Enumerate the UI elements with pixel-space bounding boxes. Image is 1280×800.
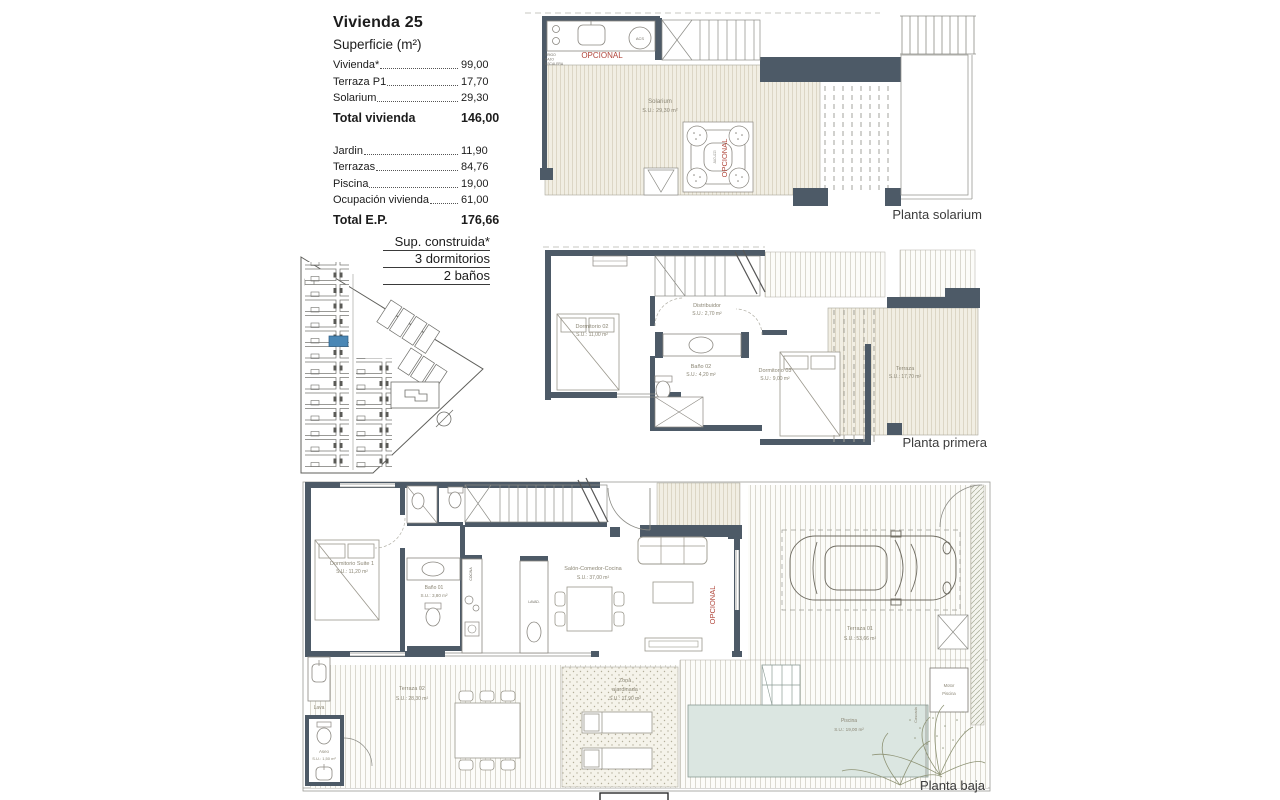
solarium-room-label: Solarium (648, 99, 672, 105)
terraza02-area: S.U.: 28,30 m² (396, 696, 429, 702)
table-row: Piscina19,00 (333, 178, 501, 190)
caption-planta-solarium: Planta solarium (892, 207, 982, 222)
table-row: Ocupación vivienda61,00 (333, 194, 501, 206)
opcional-kitchen-label: OPCIONAL (581, 51, 623, 60)
table-total-row: Total vivienda146,00 (333, 111, 501, 125)
site-amenity (391, 382, 439, 408)
table-total-row: Total E.P.176,66 (333, 213, 501, 227)
bano02-label: Baño 02 (691, 364, 712, 370)
site-units-left (305, 262, 349, 467)
jacuzzi-label: JACUZZI (713, 150, 717, 163)
dorm03-area: S.U.: 9,00 m² (760, 376, 790, 382)
pergola-slats (825, 68, 888, 193)
svg-text:BAJO: BAJO (545, 58, 554, 62)
table-row: Jardin11,90 (333, 145, 501, 157)
surface-table: Vivienda 25 Superficie (m²) Vivienda*99,… (333, 14, 501, 232)
lava-label: Lava (314, 705, 325, 711)
spec-line: Sup. construida* (383, 235, 490, 251)
hedge (971, 485, 984, 725)
entry-door-arc (608, 488, 650, 530)
window (617, 394, 663, 397)
outdoor-table (455, 691, 520, 770)
caption-planta-primera: Planta primera (902, 435, 987, 450)
cocina-label: COCINA (469, 567, 473, 581)
site-plan (293, 252, 485, 476)
zona-label-2: ajardinada (612, 687, 639, 693)
table-row: Vivienda*99,00 (333, 59, 501, 71)
caption-planta-baja: Planta baja (920, 778, 986, 793)
distribuidor-area: S.U.: 2,70 m² (692, 311, 722, 317)
section-cut-mark (735, 250, 765, 294)
cascada-label: Cascada (913, 706, 918, 723)
aseo-area: S.U.: 1,50 m² (312, 756, 336, 761)
svg-text:ESCALERA: ESCALERA (545, 62, 564, 66)
jacuzzi: JACUZZI OPCIONAL (683, 122, 753, 192)
suite-label: Dormitorio Suite 1 (330, 561, 374, 567)
bano01-area: S.U.: 3,80 m² (420, 593, 448, 598)
terraza02-label: Terraza 02 (399, 686, 425, 692)
zona-area: S.U.: 11,90 m² (609, 696, 641, 702)
terraza-label: Terraza (896, 366, 915, 372)
dorm02-area: S.U.: 11,00 m² (576, 332, 608, 338)
railing (900, 16, 976, 54)
acs-label: ACS (636, 36, 645, 41)
bano02-area: S.U.: 4,20 m² (686, 372, 716, 378)
svg-text:Motor: Motor (944, 683, 955, 688)
dining-table (555, 587, 624, 631)
site-units-middle (356, 358, 392, 470)
sofa (638, 537, 707, 564)
opcional-jacuzzi-label: OPCIONAL (720, 139, 729, 178)
motor-piscina: Motor Piscina (930, 668, 968, 712)
dorm02-label: Dormitorio 02 (575, 324, 608, 330)
salon-label: Salón-Comedor-Cocina (564, 566, 622, 572)
frigo-note: FRIGO BAJO ESCALERA (545, 53, 564, 66)
svg-text:FRIGO: FRIGO (545, 53, 556, 57)
dorm03-label: Dormitorio 03 (758, 368, 791, 374)
stairs (662, 20, 760, 60)
terraza-area: S.U.: 17,70 m² (889, 374, 922, 380)
piscina-label: Piscina (841, 718, 857, 724)
door-arc (655, 298, 683, 326)
salon-area: S.U.: 37,00 m² (577, 575, 610, 581)
kitchen-island: LAVAD. (520, 561, 548, 653)
lava-sink (308, 657, 330, 701)
door-arc (736, 309, 762, 335)
plan-primera: Dormitorio 02 S.U.: 11,00 m² Distribuido… (535, 244, 1015, 454)
piscina-area: S.U.: 19,00 m² (834, 727, 864, 732)
bed-dorm03 (780, 352, 840, 436)
kitchen-counter: COCINA (462, 559, 482, 653)
bano01 (407, 558, 460, 626)
zona-label-1: Zona (619, 678, 632, 684)
bano02 (655, 334, 741, 427)
stairs (465, 485, 607, 522)
solarium-room-area: S.U.: 29,30 m² (642, 108, 678, 114)
suite-area: S.U.: 11,20 m² (336, 569, 368, 575)
plan-baja: Dormitorio Suite 1 S.U.: 11,20 m² Baño 0… (295, 470, 995, 800)
bed-suite (315, 540, 379, 620)
coffee-table (653, 582, 693, 603)
stair-void-deck (765, 252, 885, 297)
svg-text:Piscina: Piscina (942, 691, 956, 696)
deck-hatch-marker (644, 168, 678, 195)
scale-box (600, 793, 668, 800)
porch-deck (657, 483, 740, 528)
site-highlighted-unit (329, 336, 348, 347)
solarium-deck (545, 65, 820, 195)
opcional-salon-label: OPCIONAL (708, 586, 717, 625)
ramp (938, 615, 968, 649)
table-row: Terraza P117,70 (333, 76, 501, 88)
aseo-label: Aseo (319, 749, 330, 754)
table-row: Terrazas84,76 (333, 161, 501, 173)
lavad-label: LAVAD. (528, 600, 540, 604)
north-symbol (436, 410, 453, 427)
table-row: Solarium29,30 (333, 92, 501, 104)
stairs (655, 256, 760, 296)
terraza01-label: Terraza 01 (847, 626, 873, 632)
terrace-slab (901, 55, 972, 199)
bano01-label: Baño 01 (425, 585, 444, 591)
surface-subtitle: Superficie (m²) (333, 37, 501, 52)
distribuidor-label: Distribuidor (693, 303, 721, 309)
plan-solarium: ACS OPCIONAL FRIGO BAJO ESCALERA Solariu… (520, 8, 990, 223)
door-arc (375, 518, 405, 548)
terraza01-area: S.U.: 53,66 m² (844, 636, 877, 642)
page-title: Vivienda 25 (333, 14, 501, 32)
shower-room (407, 486, 463, 523)
tv-bench (645, 638, 702, 651)
